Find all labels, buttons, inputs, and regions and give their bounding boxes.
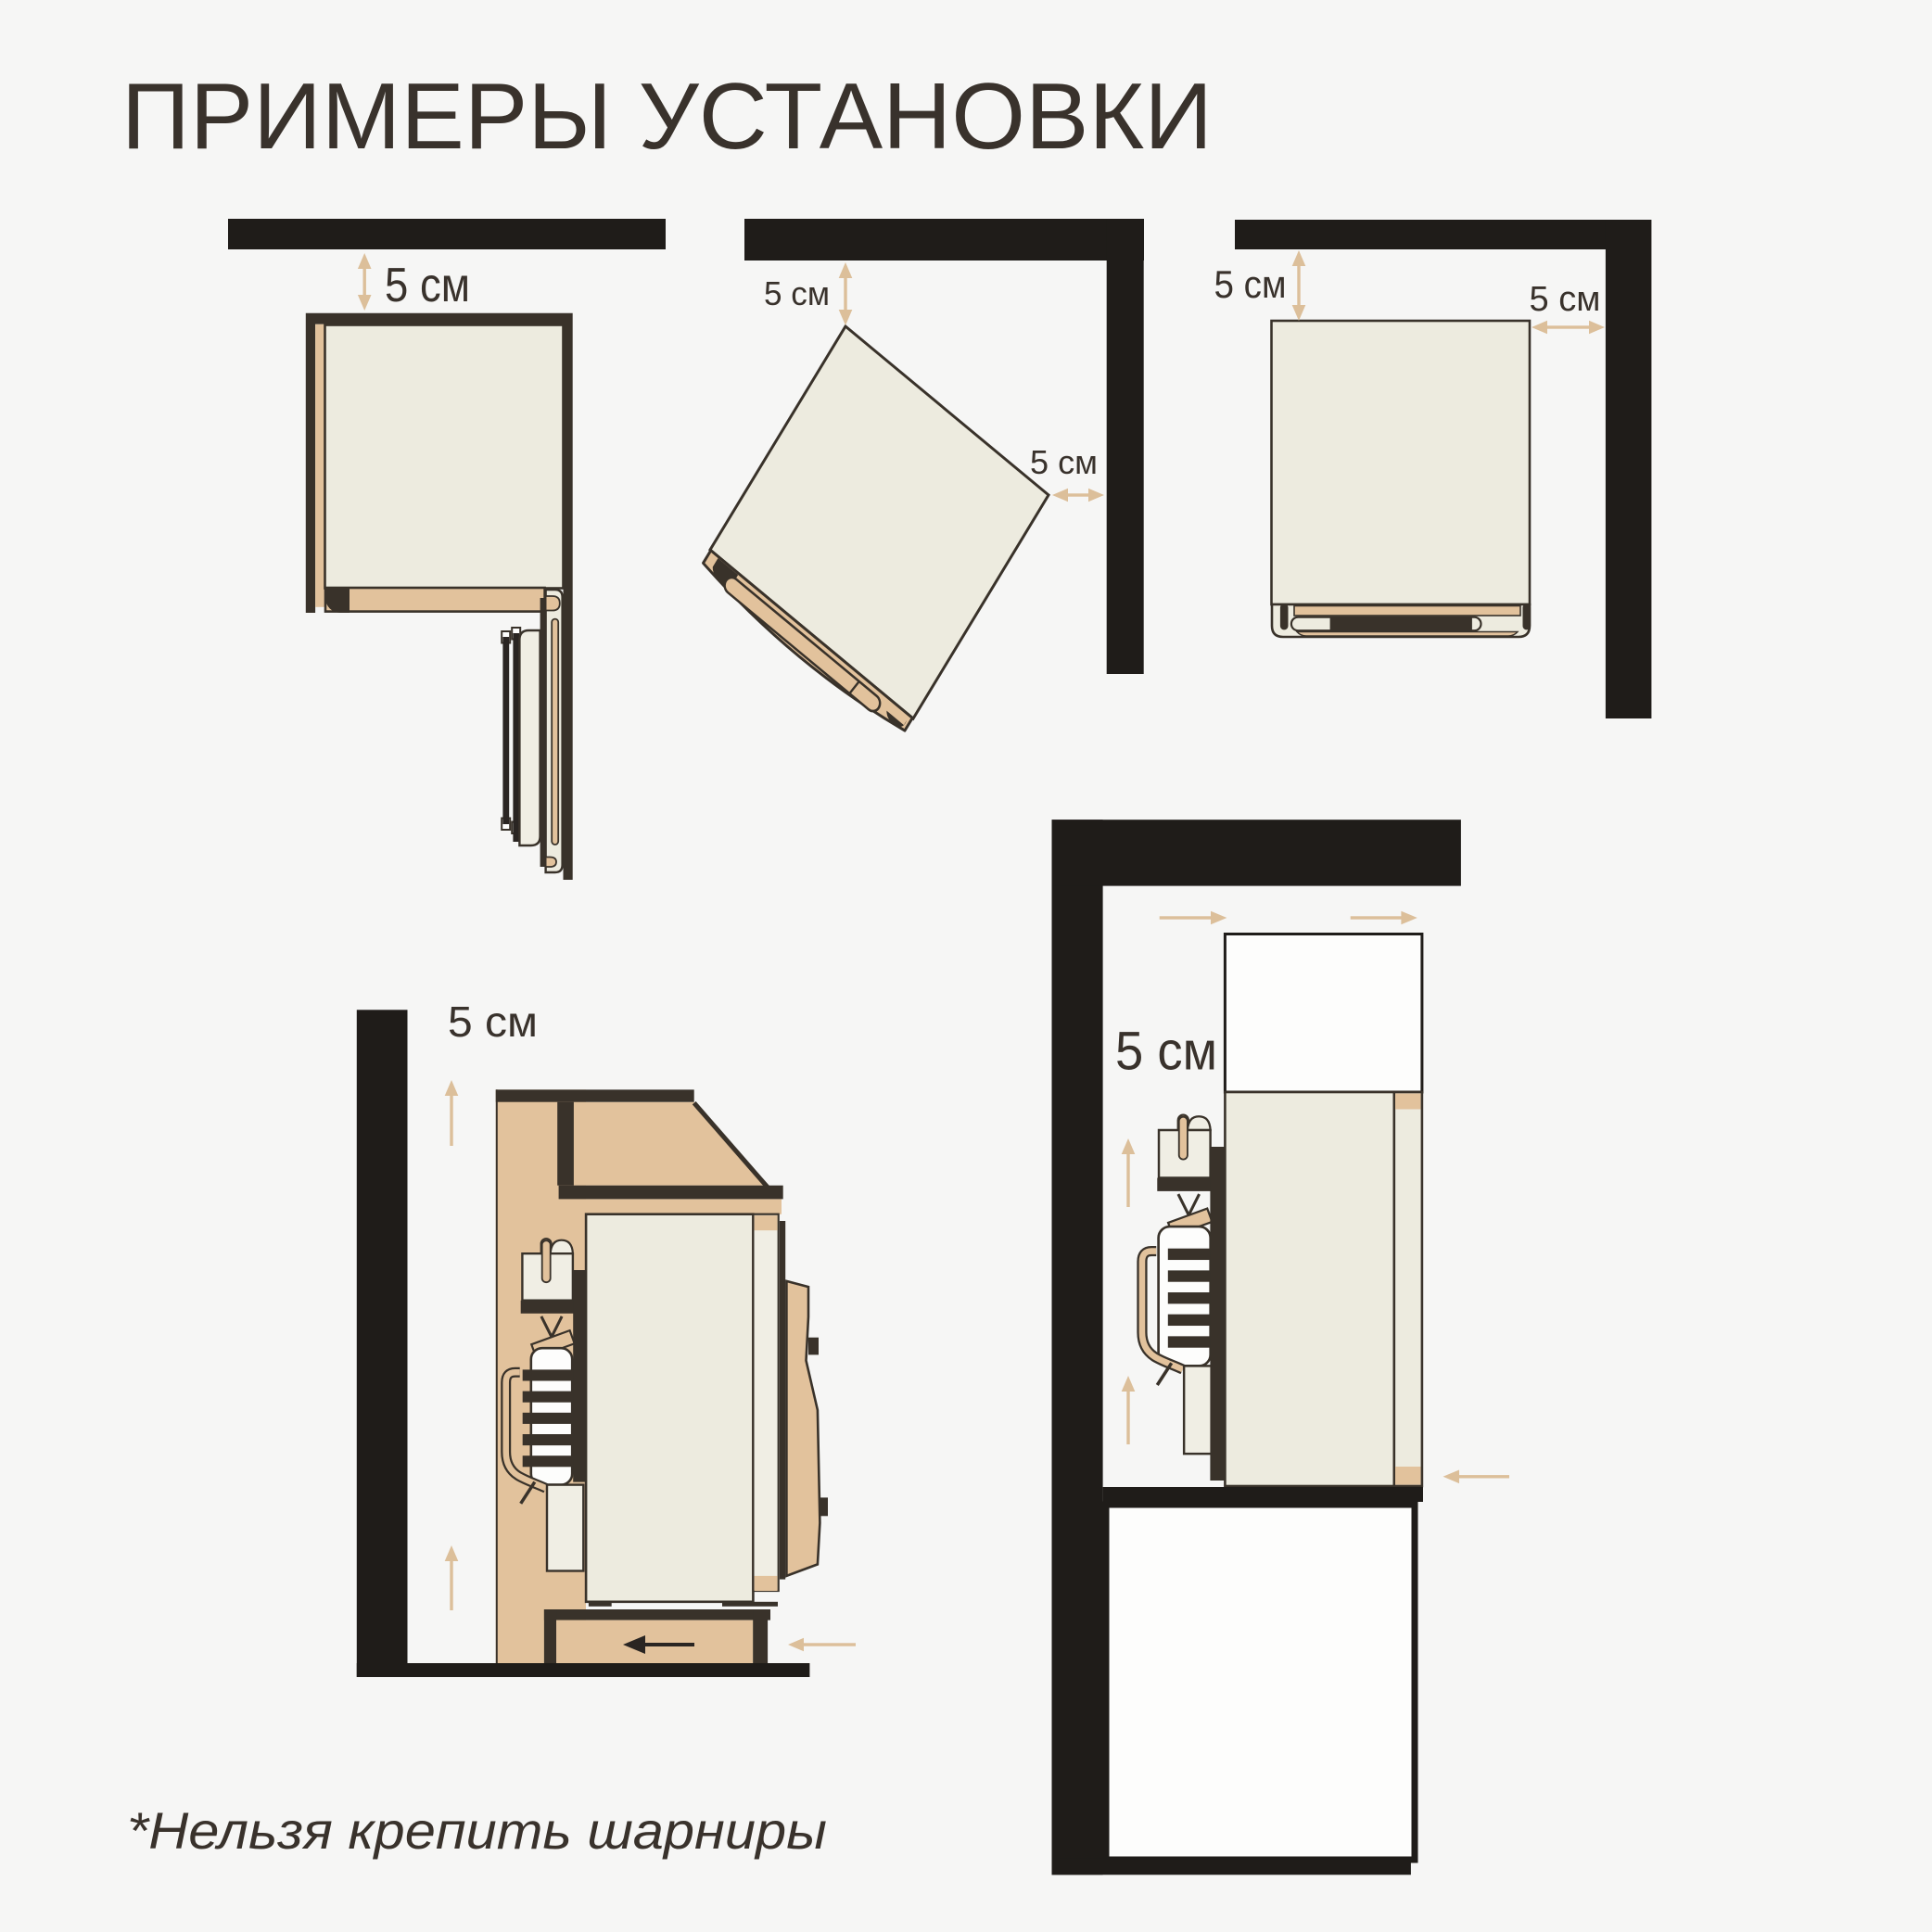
svg-text:ПРИМЕРЫ УСТАНОВКИ: ПРИМЕРЫ УСТАНОВКИ <box>121 65 1213 169</box>
svg-text:5 см: 5 см <box>1530 280 1601 319</box>
svg-text:5 см: 5 см <box>1214 262 1287 306</box>
svg-text:5 см: 5 см <box>1115 1022 1217 1082</box>
svg-text:5 см: 5 см <box>448 998 538 1046</box>
svg-text:*Нельзя крепить шарниры: *Нельзя крепить шарниры <box>127 1801 827 1860</box>
svg-text:5 см: 5 см <box>764 274 830 312</box>
svg-text:5 см: 5 см <box>385 259 470 312</box>
svg-text:5 см: 5 см <box>1030 443 1098 481</box>
